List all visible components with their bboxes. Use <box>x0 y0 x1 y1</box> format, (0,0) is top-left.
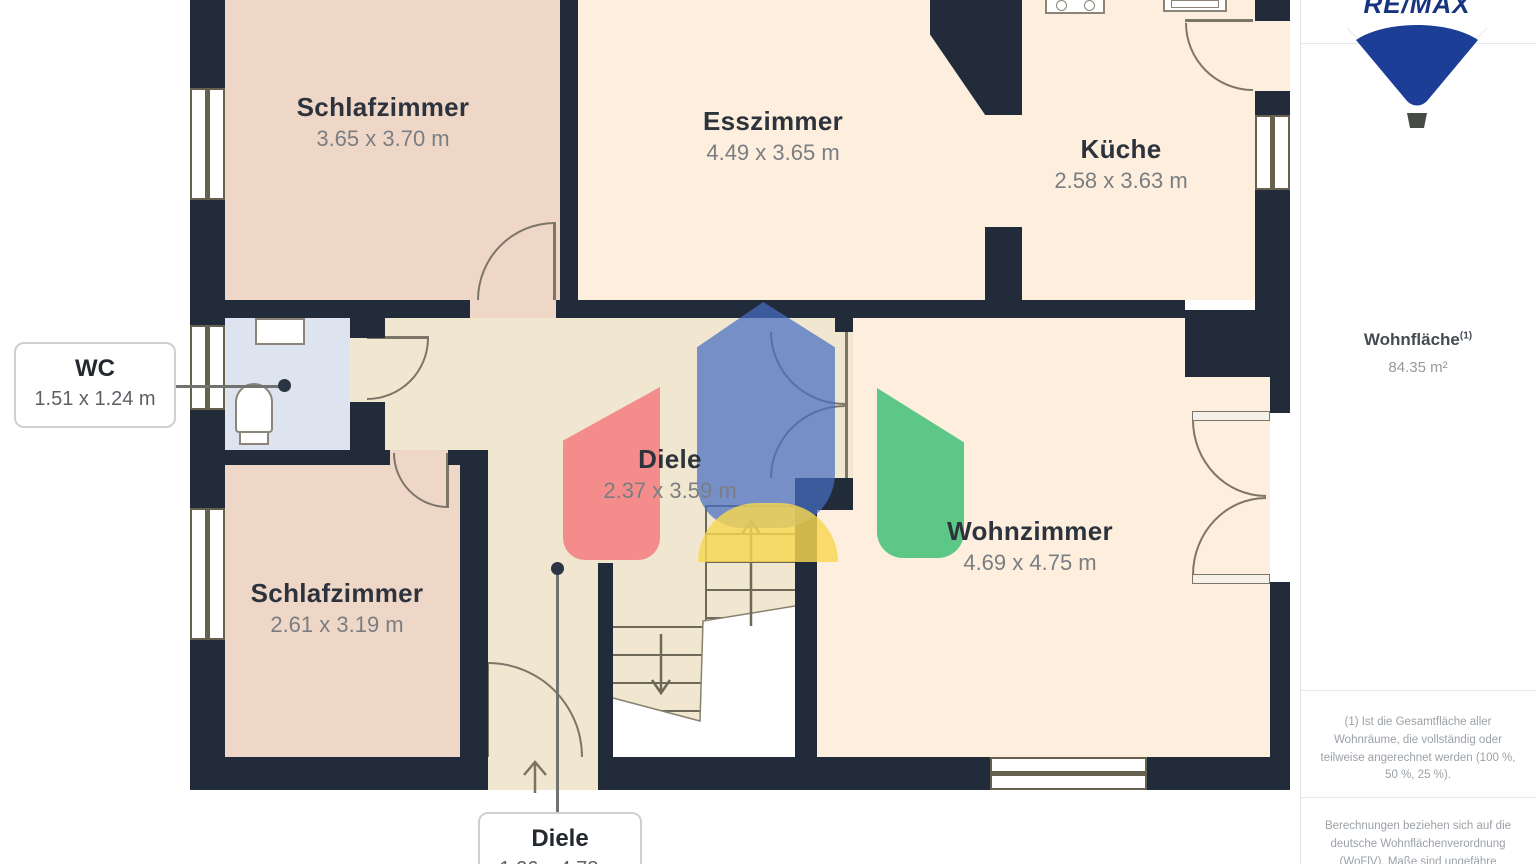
washbasin-icon <box>255 318 305 345</box>
wall-segment <box>560 0 578 300</box>
stairs-up-arrow-icon <box>737 512 765 630</box>
callout-dims: 1.26 x 4.78 m <box>480 858 640 864</box>
remax-balloon-logo-icon: RE/MAX <box>1347 0 1487 130</box>
callout-dims: 1.51 x 1.24 m <box>16 388 174 411</box>
room-name: Wohnzimmer <box>947 516 1113 547</box>
balloon-envelope <box>1356 25 1478 106</box>
remax-wordmark: RE/MAX <box>1363 0 1471 19</box>
wall-segment <box>448 450 488 465</box>
room-label-schlafzimmer-2: Schlafzimmer 2.61 x 3.19 m <box>251 578 424 638</box>
wall-segment <box>1270 582 1290 757</box>
room-label-wohnzimmer: Wohnzimmer 4.69 x 4.75 m <box>947 516 1113 576</box>
room-label-schlafzimmer-1: Schlafzimmer 3.65 x 3.70 m <box>297 92 470 152</box>
living-area-block: Wohnfläche(1) 84.35 m² <box>1300 330 1536 376</box>
wall-segment <box>1185 310 1290 377</box>
toilet-base-icon <box>239 431 269 445</box>
diele-callout-line <box>556 569 559 812</box>
wc-callout-dot <box>278 379 291 392</box>
stairs-down-arrow-icon <box>647 630 675 702</box>
wall-segment <box>1255 0 1290 21</box>
stove-burner-icon <box>1084 0 1095 11</box>
wall-segment <box>460 465 488 757</box>
wall-segment <box>795 510 817 790</box>
diele-callout-dot <box>551 562 564 575</box>
wall-segment <box>190 300 470 318</box>
door-leaf <box>845 332 848 478</box>
wall-segment <box>1270 377 1290 413</box>
entrance-arrow-icon <box>512 755 558 797</box>
toilet-icon <box>235 383 273 433</box>
french-door-leaf <box>1192 574 1270 584</box>
floor-bedroom-top-door-gap <box>470 300 556 318</box>
callout-name: Diele <box>480 825 640 853</box>
wall-segment <box>1147 757 1290 790</box>
room-dims: 2.37 x 3.59 m <box>603 478 736 504</box>
window <box>190 508 225 640</box>
window <box>990 757 1147 790</box>
floor-kitchen-door-gap <box>1255 21 1290 91</box>
window <box>1255 115 1290 190</box>
stove-burner-icon <box>1056 0 1067 11</box>
window <box>190 88 225 200</box>
diele-callout: Diele 1.26 x 4.78 m <box>478 812 642 864</box>
room-dims: 3.65 x 3.70 m <box>297 126 470 152</box>
callout-name: WC <box>16 355 174 383</box>
room-label-diele: Diele 2.37 x 3.59 m <box>603 444 736 504</box>
wall-segment <box>350 318 385 338</box>
room-name: Diele <box>603 444 736 475</box>
sink-basin-icon <box>1171 0 1219 8</box>
balloon-basket <box>1407 113 1427 128</box>
footnote-2: Berechnungen beziehen sich auf die deuts… <box>1316 818 1520 864</box>
room-name: Esszimmer <box>703 106 843 137</box>
wc-callout: WC 1.51 x 1.24 m <box>14 342 176 428</box>
room-dims: 2.58 x 3.63 m <box>1054 168 1187 194</box>
living-area-footnote-ref: (1) <box>1460 330 1472 341</box>
wall-segment <box>190 757 488 790</box>
living-area-label-text: Wohnfläche <box>1364 330 1460 349</box>
door-leaf <box>1185 19 1253 22</box>
sidebar-divider <box>1300 797 1536 798</box>
wall-segment <box>1255 91 1290 115</box>
room-dims: 2.61 x 3.19 m <box>251 612 424 638</box>
footnote-1: (1) Ist die Gesamtfläche aller Wohnräume… <box>1316 714 1520 785</box>
room-dims: 4.69 x 4.75 m <box>947 550 1113 576</box>
floor-plan-page: Schlafzimmer 3.65 x 3.70 m Esszimmer 4.4… <box>0 0 1536 864</box>
room-label-esszimmer: Esszimmer 4.49 x 3.65 m <box>703 106 843 166</box>
floor-living-left <box>817 510 853 757</box>
room-name: Küche <box>1054 134 1187 165</box>
window <box>190 325 225 410</box>
living-area-label: Wohnfläche(1) <box>1300 330 1536 350</box>
wall-segment <box>795 478 853 510</box>
room-dims: 4.49 x 3.65 m <box>703 140 843 166</box>
room-label-kueche: Küche 2.58 x 3.63 m <box>1054 134 1187 194</box>
wall-segment <box>190 450 390 465</box>
wall-segment <box>1255 190 1290 310</box>
room-name: Schlafzimmer <box>297 92 470 123</box>
stove-icon <box>1045 0 1105 14</box>
wall-segment <box>350 402 385 450</box>
stairs-break-line <box>613 600 795 726</box>
sidebar-divider <box>1300 690 1536 691</box>
door-leaf <box>553 222 556 300</box>
french-door-leaf <box>1192 411 1270 421</box>
room-name: Schlafzimmer <box>251 578 424 609</box>
wall-segment <box>598 563 613 790</box>
living-area-value: 84.35 m² <box>1300 359 1536 376</box>
wc-callout-line <box>176 385 280 388</box>
wall-segment <box>190 0 225 88</box>
wall-segment <box>556 300 1185 318</box>
